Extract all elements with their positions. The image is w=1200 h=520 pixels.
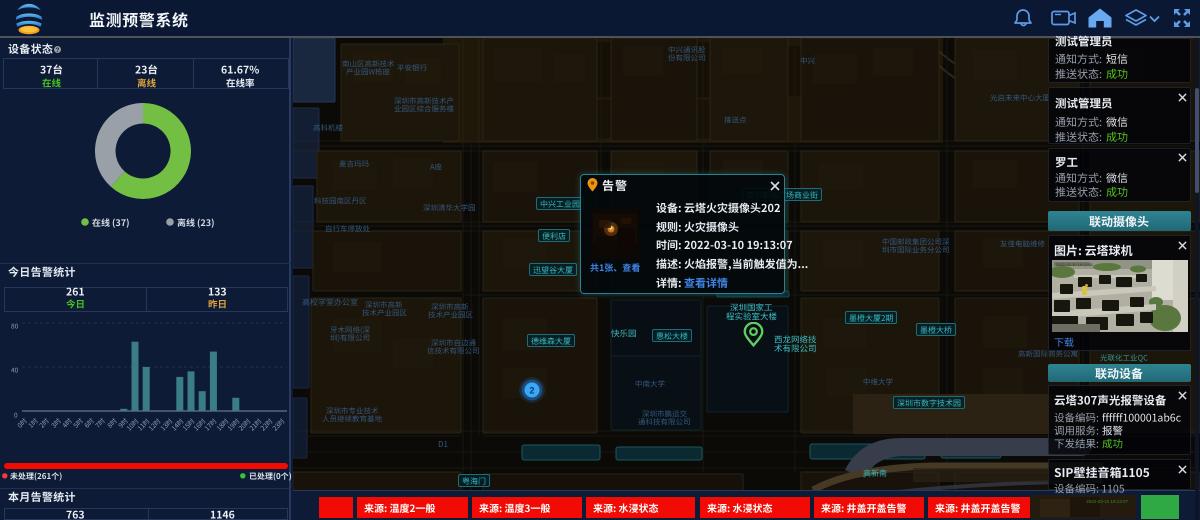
svg-text:2: 2	[529, 386, 534, 396]
svg-text:2022-03-10 19:13:02: 2022-03-10 19:13:02	[1056, 262, 1094, 267]
svg-text:2022-03-10 19:13:07: 2022-03-10 19:13:07	[1086, 499, 1128, 504]
svg-text:?: ?	[56, 48, 60, 54]
